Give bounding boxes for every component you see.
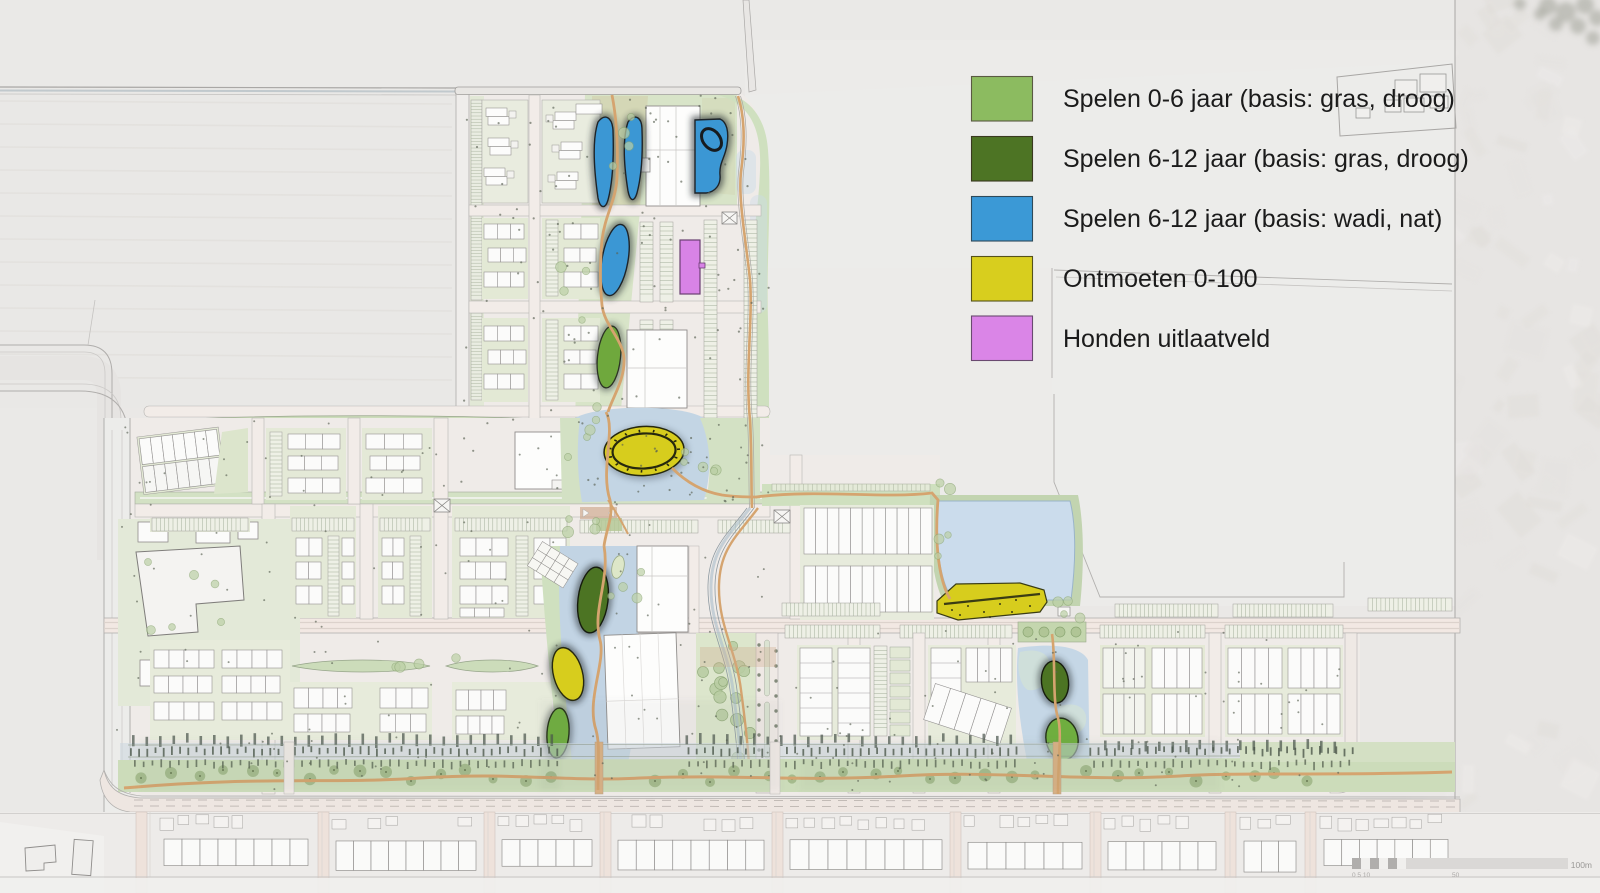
svg-text:100m: 100m [1571, 860, 1592, 870]
svg-text:0 5 10: 0 5 10 [1352, 872, 1370, 879]
svg-text:Spelen 0-6 jaar (basis: gras,: Spelen 0-6 jaar (basis: gras, droog) [1063, 85, 1455, 113]
svg-text:Spelen 6-12 jaar (basis: gras,: Spelen 6-12 jaar (basis: gras, droog) [1063, 145, 1469, 173]
svg-text:Honden uitlaatveld: Honden uitlaatveld [1063, 325, 1270, 353]
svg-text:Ontmoeten 0-100: Ontmoeten 0-100 [1063, 265, 1258, 293]
svg-text:Spelen 6-12 jaar (basis: wadi,: Spelen 6-12 jaar (basis: wadi, nat) [1063, 205, 1442, 233]
svg-text:50: 50 [1452, 872, 1460, 879]
